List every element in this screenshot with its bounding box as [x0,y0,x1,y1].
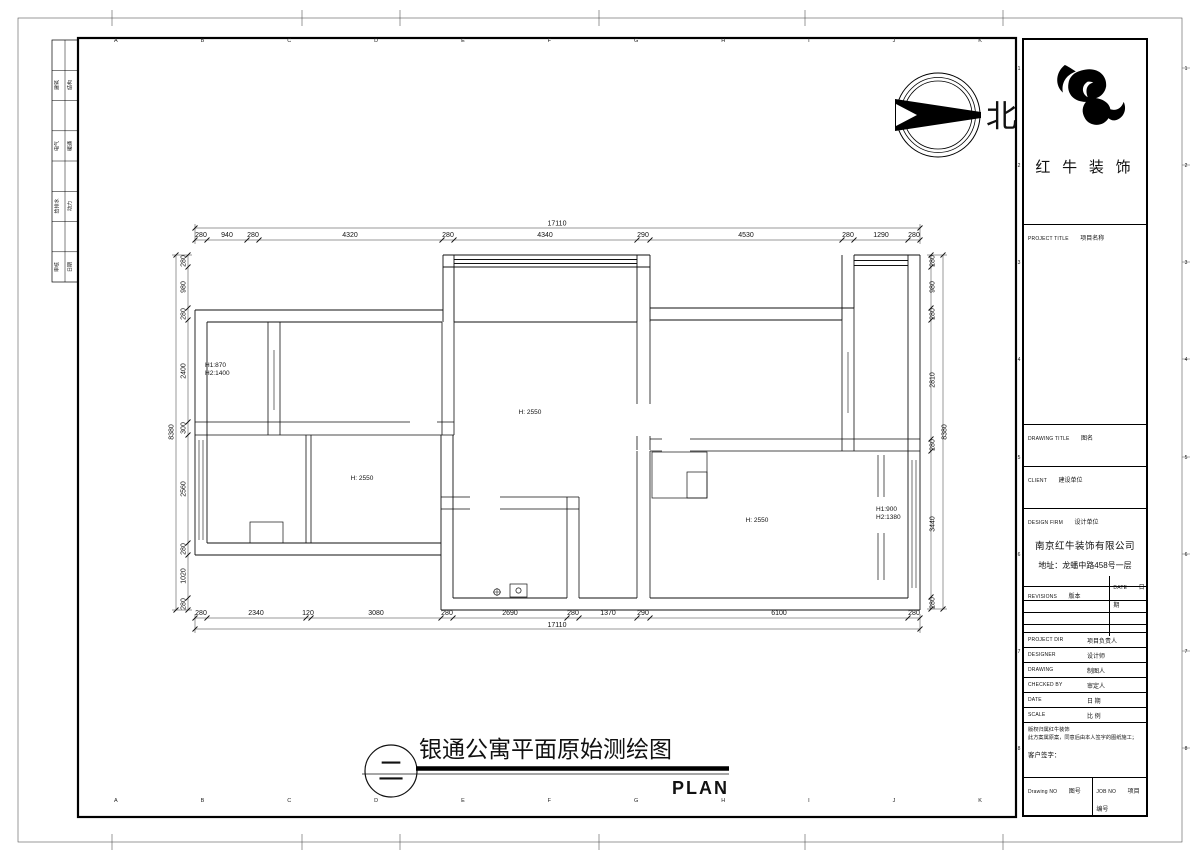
dim-label: 290 [637,610,649,617]
sign-cell: 动力 [67,201,74,211]
dim-label: 1370 [600,610,616,617]
grid-letter: C [287,798,291,804]
design-firm-label-zh: 设计单位 [1074,520,1098,526]
date-col-label-en: DATE [1113,585,1127,591]
dim-label: 280 [908,610,920,617]
window-height-label: H2:1380 [876,514,901,521]
grid-number: 5 [1185,455,1188,461]
dim-label: 280 [567,610,579,617]
grid-letter: F [548,798,551,804]
dimension-labels-top: 280 940 280 4320 280 4340 290 4530 280 1… [195,221,920,240]
dim-label: 290 [637,232,649,239]
dim-label: 280 [908,232,920,239]
project-dir-label-en: PROJECT DIR [1028,637,1080,643]
grid-letter: B [201,798,205,804]
dim-label: 280 [442,232,454,239]
project-title-label-zh: 项目名称 [1080,236,1104,242]
drawing-title-label-en: DRAWING TITLE [1028,436,1070,442]
north-label: 北 [986,99,1017,134]
dim-label: 280 [930,255,937,267]
grid-letter: E [461,38,465,44]
sheet-title: 二 银通公寓平面原始测绘图 PLAN [362,736,729,798]
dim-label: 3080 [368,610,384,617]
title-block: 红 牛 装 饰 PROJECT TITLE 项目名称 DRAWING TITLE… [1022,38,1148,817]
designer-row: DESIGNER 设计师 [1024,647,1146,662]
dim-label: 280 [181,308,188,320]
drawing-no-label-zh: 图号 [1069,789,1081,795]
grid-letter: E [461,798,465,804]
title-index: 二 [378,756,404,786]
grid-number: 2 [1018,163,1021,169]
grid-letter: G [634,798,638,804]
company-address: 地址：龙蟠中路458号一层 [1028,560,1142,571]
dim-label: 3440 [930,516,937,532]
revision-row [1024,612,1146,624]
dim-label: 280 [181,543,188,555]
dim-label: 2560 [181,481,188,497]
sign-cell: 审核 [54,262,61,272]
drawing-title-en: PLAN [672,778,729,798]
grid-letters-top: ABCDEFGHIJK [80,38,1016,44]
drawing-label-zh: 制图人 [1087,666,1105,675]
dim-label: 980 [181,281,188,293]
sign-cell: 电气 [54,141,61,151]
grid-letters-bottom: ABCDEFGHIJK [80,798,1016,804]
grid-letter: C [287,38,291,44]
job-no-label-en: JOB NO [1096,789,1116,795]
grid-number: 3 [1018,260,1021,266]
scale-label-en: SCALE [1028,712,1080,718]
sign-cell: 暖通 [67,141,74,151]
fixtures [250,522,527,597]
grid-letter: F [548,38,551,44]
date-label-en: DATE [1028,697,1080,703]
grid-letter: J [893,798,896,804]
grid-number: 4 [1018,357,1021,363]
grid-letter: K [978,798,982,804]
grid-letter: J [893,38,896,44]
window-height-label: H1:900 [876,506,897,513]
dim-label: 280 [930,439,937,451]
dimension-labels-right: 280 980 280 2810 280 3440 280 8380 [930,255,949,609]
grid-number: 1 [1185,66,1188,72]
dim-label: 4530 [738,232,754,239]
north-arrow: 北 [895,73,1017,157]
dim-label: 280 [842,232,854,239]
grid-letter: B [201,38,205,44]
grid-number: 4 [1185,357,1188,363]
grid-number: 8 [1018,746,1021,752]
dim-label: 280 [195,610,207,617]
drawing-frame [78,38,1016,817]
company-brand-name: 红 牛 装 饰 [1024,156,1146,177]
dim-label: 280 [930,597,937,609]
copyright-line-2: 此方案属原案，同意后由本人签字的图纸施工； [1028,734,1142,742]
scale-row: SCALE 比 例 [1024,707,1146,722]
dim-label: 300 [181,422,188,434]
grid-letter: D [374,38,378,44]
dim-total: 8380 [169,424,176,440]
checked-by-label-zh: 审定人 [1087,681,1105,690]
date-row: DATE 日 期 [1024,692,1146,707]
dim-label: 2400 [181,363,188,379]
drawing-title-section: DRAWING TITLE 图名 [1024,424,1146,466]
drawing-sheet: { "frame": { "letters": ["A","B","C","D"… [0,0,1200,860]
window-lines [199,350,916,588]
fixture-basin [250,522,283,543]
grid-letter: D [374,798,378,804]
date-label-zh: 日 期 [1087,696,1101,705]
grid-letter: I [808,798,810,804]
company-logo-bull-icon [1039,54,1131,146]
sheet-canvas: 建筑 结构 电气 暖通 给排水 动力 审核 日期 北 [0,0,1200,860]
grid-number: 3 [1185,260,1188,266]
window-height-label: H1:870 [205,362,226,369]
grid-number: 5 [1018,455,1021,461]
design-firm-label-en: DESIGN FIRM [1028,520,1063,526]
grid-letter: K [978,38,982,44]
checked-by-row: CHECKED BY 审定人 [1024,677,1146,692]
dim-label: 280 [930,308,937,320]
dim-label: 280 [195,232,207,239]
grid-number: 2 [1185,163,1188,169]
drawing-row: DRAWING 制图人 [1024,662,1146,677]
checked-by-label-en: CHECKED BY [1028,682,1080,688]
floor-plan-exterior-walls [195,255,920,610]
drawing-number-row: Drawing NO 图号 JOB NO 项目编号 [1024,777,1146,816]
revisions-label-zh: 版本 [1068,594,1080,600]
sign-cell: 结构 [67,80,74,90]
dim-label: 280 [181,255,188,267]
dim-label: 120 [302,610,314,617]
dim-label: 280 [441,610,453,617]
fixture-toilet [510,584,527,597]
grid-letter: A [114,38,118,44]
dim-label: 4340 [537,232,553,239]
grid-number: 7 [1018,649,1021,655]
grid-letter: H [721,38,725,44]
dim-total: 17110 [548,221,567,228]
grid-letter: I [808,38,810,44]
designer-label-zh: 设计师 [1087,651,1105,660]
revisions-table: REVISIONS 版本 DATE 日期 [1024,586,1146,636]
client-label-en: CLIENT [1028,478,1047,484]
ceiling-height-label: H: 2550 [519,409,542,416]
sheet-borders [18,10,1190,850]
project-title-label-en: PROJECT TITLE [1028,236,1069,242]
project-title-section: PROJECT TITLE 项目名称 [1024,224,1146,424]
dim-label: 2690 [502,610,518,617]
ceiling-height-label: H: 2550 [351,475,374,482]
dimension-lines [172,224,947,633]
room-labels: H1:870 H2:1400 H: 2550 H: 2550 H: 2550 H… [205,362,901,524]
fold-marks [112,10,1003,850]
ceiling-height-label: H: 2550 [746,517,769,524]
design-firm-section: DESIGN FIRM 设计单位 南京红牛装饰有限公司 地址：龙蟠中路458号一… [1024,508,1146,586]
dim-label: 280 [247,232,259,239]
dim-label: 940 [221,232,233,239]
dim-label: 2810 [930,372,937,388]
signature-strip: 建筑 结构 电气 暖通 给排水 动力 审核 日期 [52,40,78,282]
company-name: 南京红牛装饰有限公司 [1028,538,1142,552]
dim-label: 2340 [248,610,264,617]
dim-label: 980 [930,281,937,293]
drawing-title-zh: 银通公寓平面原始测绘图 [419,736,672,762]
client-section: CLIENT 建设单位 [1024,466,1146,508]
grid-letter: G [634,38,638,44]
sign-cell: 建筑 [54,80,61,90]
project-dir-row: PROJECT DIR 项目负责人 [1024,632,1146,647]
dim-total: 17110 [548,622,567,629]
drawing-no-label-en: Drawing NO [1028,789,1057,795]
client-signature-label: 客户签字： [1028,749,1142,759]
grid-number: 1 [1018,66,1021,72]
dim-label: 1020 [181,568,188,584]
designer-label-en: DESIGNER [1028,652,1080,658]
dim-label: 1290 [873,232,889,239]
sign-cell: 日期 [68,262,74,272]
grid-number: 7 [1185,649,1188,655]
copyright-line-1: 版权归属红牛装饰 [1028,726,1142,734]
dimension-ticks [174,226,946,632]
drawing-label-en: DRAWING [1028,667,1080,673]
floor-plan-interior-walls [195,308,920,598]
grid-number: 6 [1185,552,1188,558]
sign-cell: 给排水 [54,198,61,213]
client-label-zh: 建设单位 [1058,478,1082,484]
copyright-notes: 版权归属红牛装饰 此方案属原案，同意后由本人签字的图纸施工； 客户签字： [1024,722,1146,777]
project-dir-label-zh: 项目负责人 [1087,636,1117,645]
dim-label: 280 [181,598,188,610]
grid-letter: A [114,798,118,804]
grid-number: 6 [1018,552,1021,558]
revisions-label-en: REVISIONS [1028,594,1057,600]
dim-total: 8380 [942,424,949,440]
dim-label: 6100 [771,610,787,617]
drawing-title-label-zh: 图名 [1081,436,1093,442]
revision-row [1024,600,1146,612]
dim-label: 4320 [342,232,358,239]
dimension-labels-left: 280 980 280 2400 300 2560 280 1020 280 8… [169,255,188,610]
grid-number: 8 [1185,746,1188,752]
grid-letter: H [721,798,725,804]
scale-label-zh: 比 例 [1087,711,1101,720]
window-height-label: H2:1400 [205,370,230,377]
